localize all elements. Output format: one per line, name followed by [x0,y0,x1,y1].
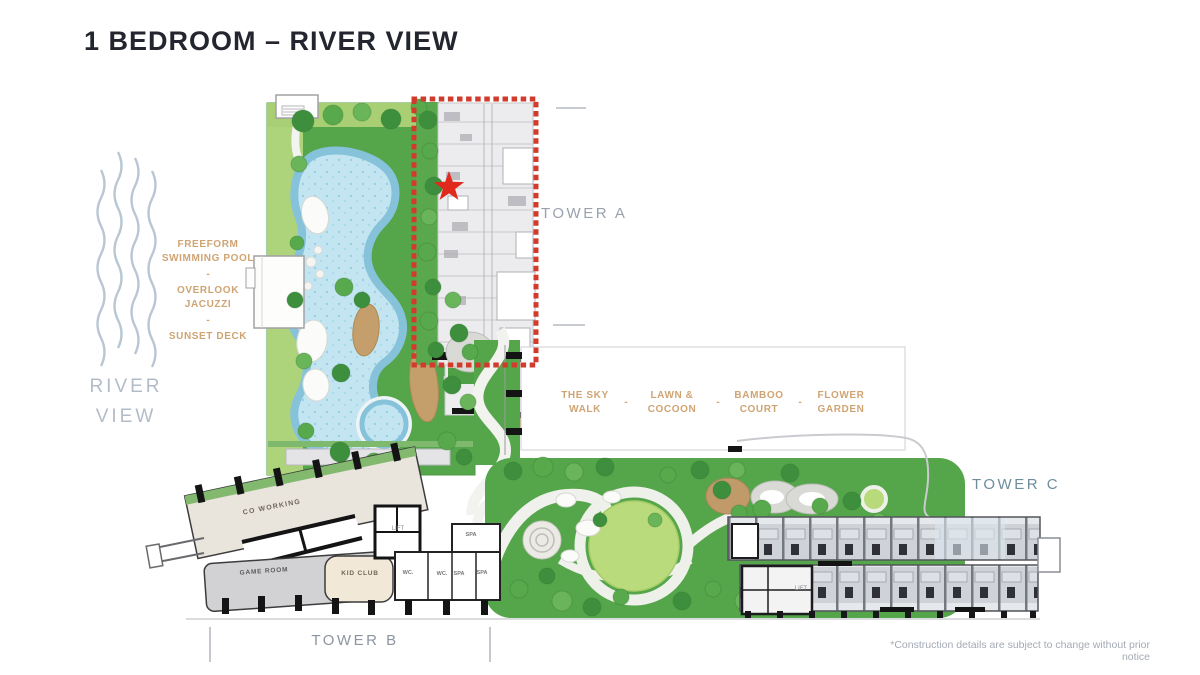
wc-label: WC. [396,570,420,576]
amenity-separator: - [624,397,627,409]
spa-label: SPA [459,532,483,538]
spa-label: SPA [470,570,494,576]
legend-separator: - [206,315,209,327]
jacuzzi-shape [362,402,406,446]
tower-a-label: TOWER A [541,205,627,222]
garden-amenities-row: THE SKY WALK - LAWN & COCOON - BAMBOO CO… [552,389,874,417]
tower-c-building [728,517,1060,618]
legend-separator: - [206,269,209,281]
river-waves-icon [98,152,156,367]
page-title: 1 BEDROOM – RIVER VIEW [84,26,459,57]
amenity-bamboo-court: BAMBOO COURT [726,389,792,417]
amenity-flower-garden: FLOWER GARDEN [808,389,874,417]
tower-c-label: TOWER C [972,476,1060,493]
slide-canvas: 1 BEDROOM – RIVER VIEW RIVER VIEW FREEFO… [0,0,1200,675]
amenity-separator: - [716,397,719,409]
lift-label: LIFT [786,586,816,592]
tower-b-label: TOWER B [210,632,500,649]
amenity-lawn-cocoon: LAWN & COCOON [634,389,710,417]
amenity-separator: - [798,397,801,409]
river-view-label: RIVER VIEW [86,372,166,433]
amenity-sunset-deck: SUNSET DECK [169,330,247,344]
amenity-sky-walk: THE SKY WALK [552,389,618,417]
amenity-freeform-pool: FREEFORM SWIMMING POOL [160,238,256,266]
pool-amenities-legend: FREEFORM SWIMMING POOL - OVERLOOK JACUZZ… [160,238,256,344]
lift-label: LIFT [378,526,418,532]
spa-label: SPA [447,571,471,577]
kid-club-label: KID CLUB [330,570,390,577]
amenity-overlook-jacuzzi: OVERLOOK JACUZZI [160,284,256,312]
construction-disclaimer: *Construction details are subject to cha… [890,639,1150,663]
